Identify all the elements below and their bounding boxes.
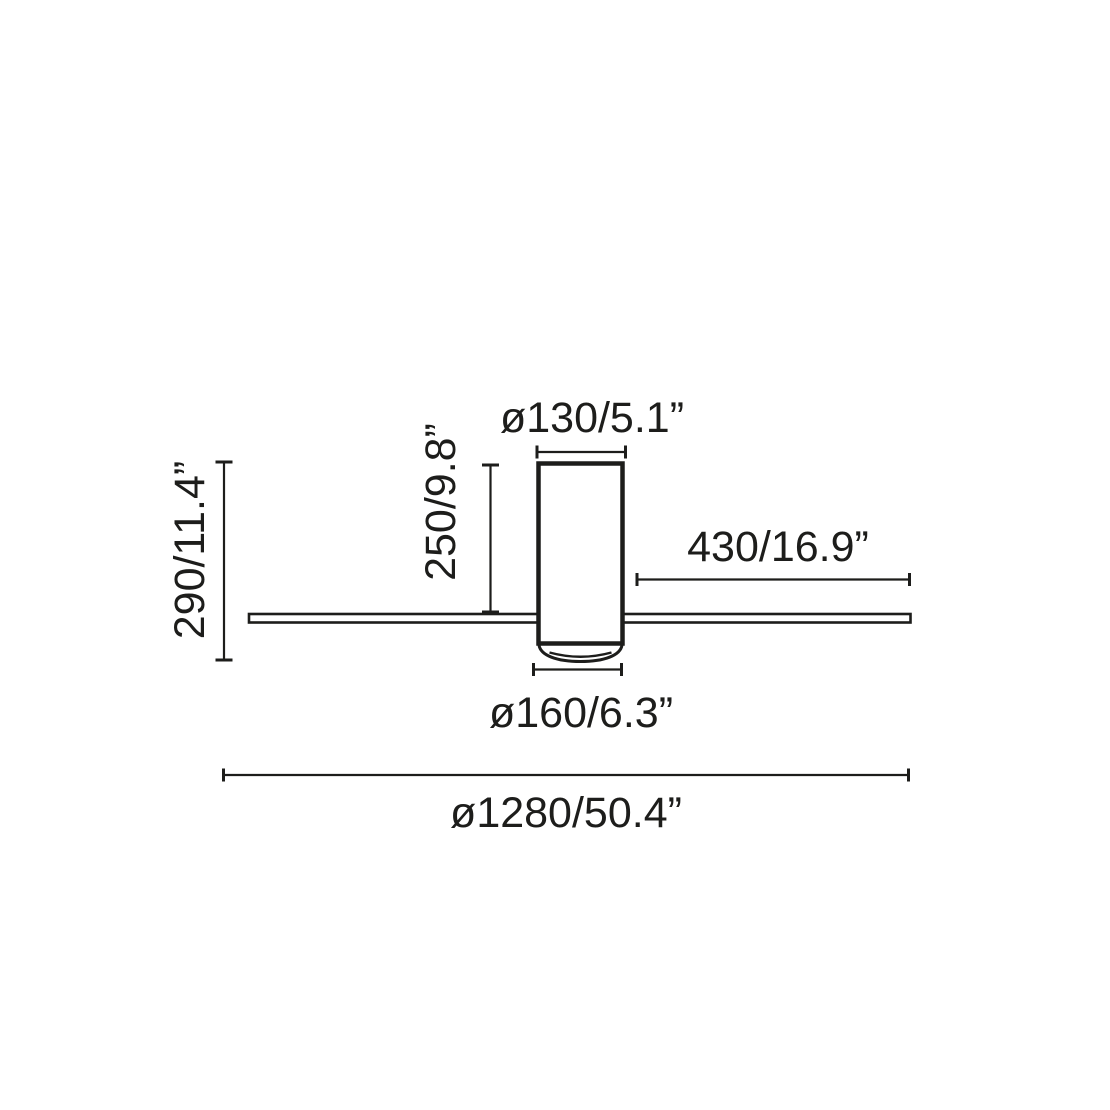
label-bottom-diameter: ø160/6.3” — [489, 689, 673, 737]
label-blade-length: 430/16.9” — [687, 523, 869, 571]
label-body-height: 250/9.8” — [417, 423, 465, 581]
diagram-canvas: ø130/5.1” 250/9.8” 290/11.4” 430/16.9” ø… — [0, 0, 1110, 1110]
dim-line-total-height — [216, 462, 233, 660]
dim-line-top-diameter — [537, 446, 626, 459]
dim-line-bottom-diameter — [534, 663, 622, 676]
label-total-height: 290/11.4” — [166, 461, 214, 640]
dim-line-body-height — [482, 465, 499, 612]
label-total-diameter: ø1280/50.4” — [450, 789, 682, 837]
dim-line-blade-length — [637, 573, 910, 586]
label-top-diameter: ø130/5.1” — [500, 394, 684, 442]
ceiling-fan-dimension-diagram: ø130/5.1” 250/9.8” 290/11.4” 430/16.9” ø… — [0, 0, 1110, 1110]
fan-motor-body — [539, 464, 623, 644]
dim-line-total-diameter — [224, 769, 909, 782]
